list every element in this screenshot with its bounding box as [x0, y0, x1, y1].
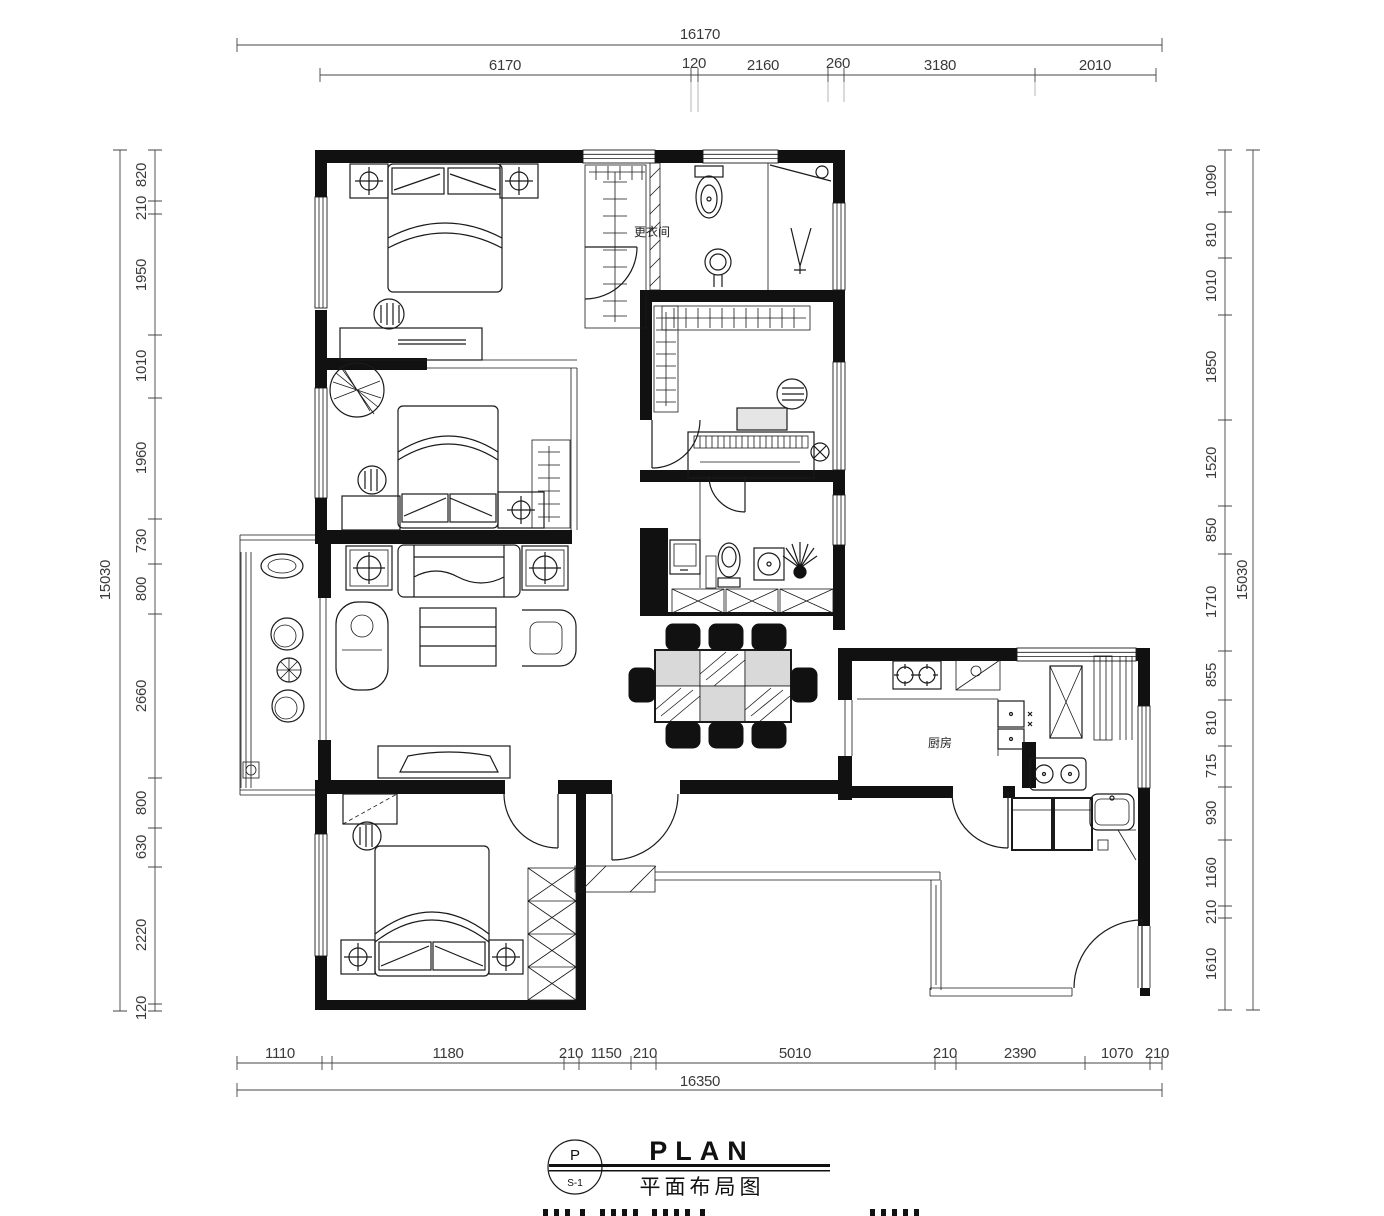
dim-top-0: 6170: [489, 57, 521, 74]
dim-top-1: 120: [682, 55, 706, 72]
kitchen: [857, 656, 1132, 790]
bedroom2: [330, 363, 570, 530]
dining-area: [629, 624, 817, 748]
washbasin-cabinet: [670, 540, 700, 574]
dim-left-6: 800: [133, 577, 150, 601]
dim-right-3: 1850: [1203, 351, 1220, 383]
study-room: [654, 306, 829, 478]
dim-bottom-8: 1070: [1101, 1045, 1133, 1062]
dim-top-4: 3180: [924, 57, 956, 74]
dim-top-total: 16170: [680, 26, 720, 43]
balcony: [261, 554, 304, 722]
keyboard: [694, 436, 808, 448]
entry-step: [575, 866, 656, 892]
floor-plan-drawing: 16170 6170 120 2160 260 3180 2010 16350 …: [0, 0, 1384, 1216]
dim-left-4: 1960: [133, 442, 150, 474]
dim-bottom-4: 210: [633, 1045, 657, 1062]
bedroom3-door: [504, 794, 558, 848]
sink-cabinet: [998, 701, 1024, 727]
toilet: [718, 543, 740, 577]
clipped-text-fragments: [543, 1209, 919, 1216]
dim-right-8: 810: [1203, 711, 1220, 735]
master-bedroom: [340, 164, 538, 360]
plan-bubble-bottom-label: S-1: [567, 1178, 583, 1189]
dim-left-total: 15030: [97, 560, 114, 600]
dim-right-total: 15030: [1234, 560, 1251, 600]
windows: [240, 150, 1150, 990]
pillow: [402, 494, 448, 522]
dim-bottom-0: 1110: [265, 1045, 295, 1062]
dining-chair: [666, 624, 700, 650]
dining-chair: [752, 722, 786, 748]
laundry-window: [931, 880, 941, 990]
dining-chair: [709, 722, 743, 748]
toilet-tank: [695, 166, 723, 177]
dim-right-1: 810: [1203, 223, 1220, 247]
dim-left-1: 210: [133, 196, 150, 220]
toilet-tank: [718, 578, 740, 587]
plan-title-cn: 平面布局图: [640, 1176, 765, 1199]
title-rule-thin: [549, 1170, 830, 1172]
entry-door: [612, 794, 678, 860]
dining-chair: [629, 668, 655, 702]
planter: [261, 554, 303, 578]
balcony-exterior-door: [1074, 920, 1142, 988]
piano: [737, 408, 787, 430]
dim-left-9: 630: [133, 835, 150, 859]
doors: [504, 247, 1142, 988]
dim-left-7: 2660: [133, 680, 150, 712]
dim-left-11: 120: [133, 996, 150, 1020]
kitchen-label: 厨房: [928, 735, 952, 750]
wardrobe: [532, 440, 570, 528]
dim-right-12: 210: [1203, 900, 1220, 924]
burner: [897, 667, 913, 683]
dim-left-0: 820: [133, 163, 150, 187]
hallway-door: [585, 247, 637, 299]
round-chair: [272, 690, 304, 722]
dim-right-0: 1090: [1203, 165, 1220, 197]
washer: [1012, 798, 1052, 850]
dim-left-3: 1010: [133, 350, 150, 382]
shower-shelf: [770, 165, 831, 181]
coffee-table: [420, 608, 496, 666]
bathroom2: [670, 540, 833, 613]
kitchen-laundry-door: [952, 792, 1008, 848]
dining-chair: [709, 624, 743, 650]
sink-cabinet: [998, 729, 1024, 749]
living-room: [336, 545, 576, 778]
double-sink: [1030, 758, 1086, 790]
dim-right-10: 930: [1203, 801, 1220, 825]
pillow: [448, 168, 500, 194]
dim-right-5: 850: [1203, 518, 1220, 542]
dimension-chain-left: 15030 820 210 1950 1010 1960 730 800 266…: [97, 150, 162, 1020]
washbasin: [705, 249, 731, 275]
dining-chair: [666, 722, 700, 748]
pillow: [392, 168, 444, 194]
balcony-inner-glazing: [320, 598, 326, 740]
dim-bottom-1: 1180: [432, 1045, 463, 1062]
plan-title-en: PLAN: [649, 1136, 755, 1166]
dim-left-10: 2220: [133, 919, 150, 951]
partition: [706, 556, 716, 588]
dim-right-7: 855: [1203, 663, 1220, 687]
dim-top-5: 2010: [1079, 57, 1111, 74]
dim-bottom-2: 210: [559, 1045, 583, 1062]
sofa: [398, 545, 520, 597]
dim-left-2: 1950: [133, 259, 150, 291]
dining-chair: [752, 624, 786, 650]
dim-right-9: 715: [1203, 754, 1220, 778]
desk: [342, 496, 400, 530]
dimension-chain-top: 16170 6170 120 2160 260 3180 2010: [237, 26, 1162, 112]
dimension-chain-right: 15030 1090 810 1010 1850 1520 850 1710 8…: [1203, 150, 1260, 1010]
desk-chair: [358, 466, 386, 494]
dim-right-13: 1610: [1203, 948, 1220, 980]
dim-right-4: 1520: [1203, 447, 1220, 479]
dim-left-8: 800: [133, 791, 150, 815]
dim-bottom-9: 210: [1145, 1045, 1169, 1062]
master-bed: [388, 164, 502, 292]
desk-chair: [353, 822, 381, 850]
tv: [400, 752, 498, 772]
bed: [375, 846, 489, 976]
floor-drain: [1098, 840, 1108, 850]
master-bathroom: [695, 165, 831, 287]
dim-bottom-5: 5010: [779, 1045, 811, 1062]
dim-bottom-3: 1150: [590, 1045, 621, 1062]
dimension-chain-bottom: 16350 1110 1180 210 1150 210 5010 210 23…: [237, 1045, 1169, 1097]
laundry-balcony: [1012, 794, 1136, 860]
dim-right-6: 1710: [1203, 586, 1220, 618]
plan-bubble-top-label: P: [570, 1147, 580, 1164]
dim-left-5: 730: [133, 529, 150, 553]
round-chair: [271, 618, 303, 650]
study-door: [652, 420, 700, 468]
walls: [315, 150, 1150, 1010]
dim-top-3: 260: [826, 55, 850, 72]
plant: [783, 542, 817, 568]
tv-cabinet: [378, 746, 510, 778]
dim-top-2: 2160: [747, 57, 779, 74]
dim-right-2: 1010: [1203, 270, 1220, 302]
dim-bottom-6: 210: [933, 1045, 957, 1062]
bedroom3: [341, 794, 576, 1000]
top-extension-lines: [691, 82, 1035, 112]
tall-cabinet: [1094, 656, 1112, 740]
dryer: [1054, 798, 1092, 850]
dim-bottom-total: 16350: [680, 1073, 720, 1090]
title-block: P S-1 PLAN 平面布局图: [548, 1136, 830, 1199]
interior-partitions: [427, 163, 1150, 996]
dim-bottom-7: 2390: [1004, 1045, 1036, 1062]
shower-drain: [791, 228, 811, 274]
dressing-room-label: 更衣间: [634, 224, 670, 239]
dim-right-11: 1160: [1203, 857, 1220, 888]
burner: [919, 667, 935, 683]
dining-chair: [791, 668, 817, 702]
